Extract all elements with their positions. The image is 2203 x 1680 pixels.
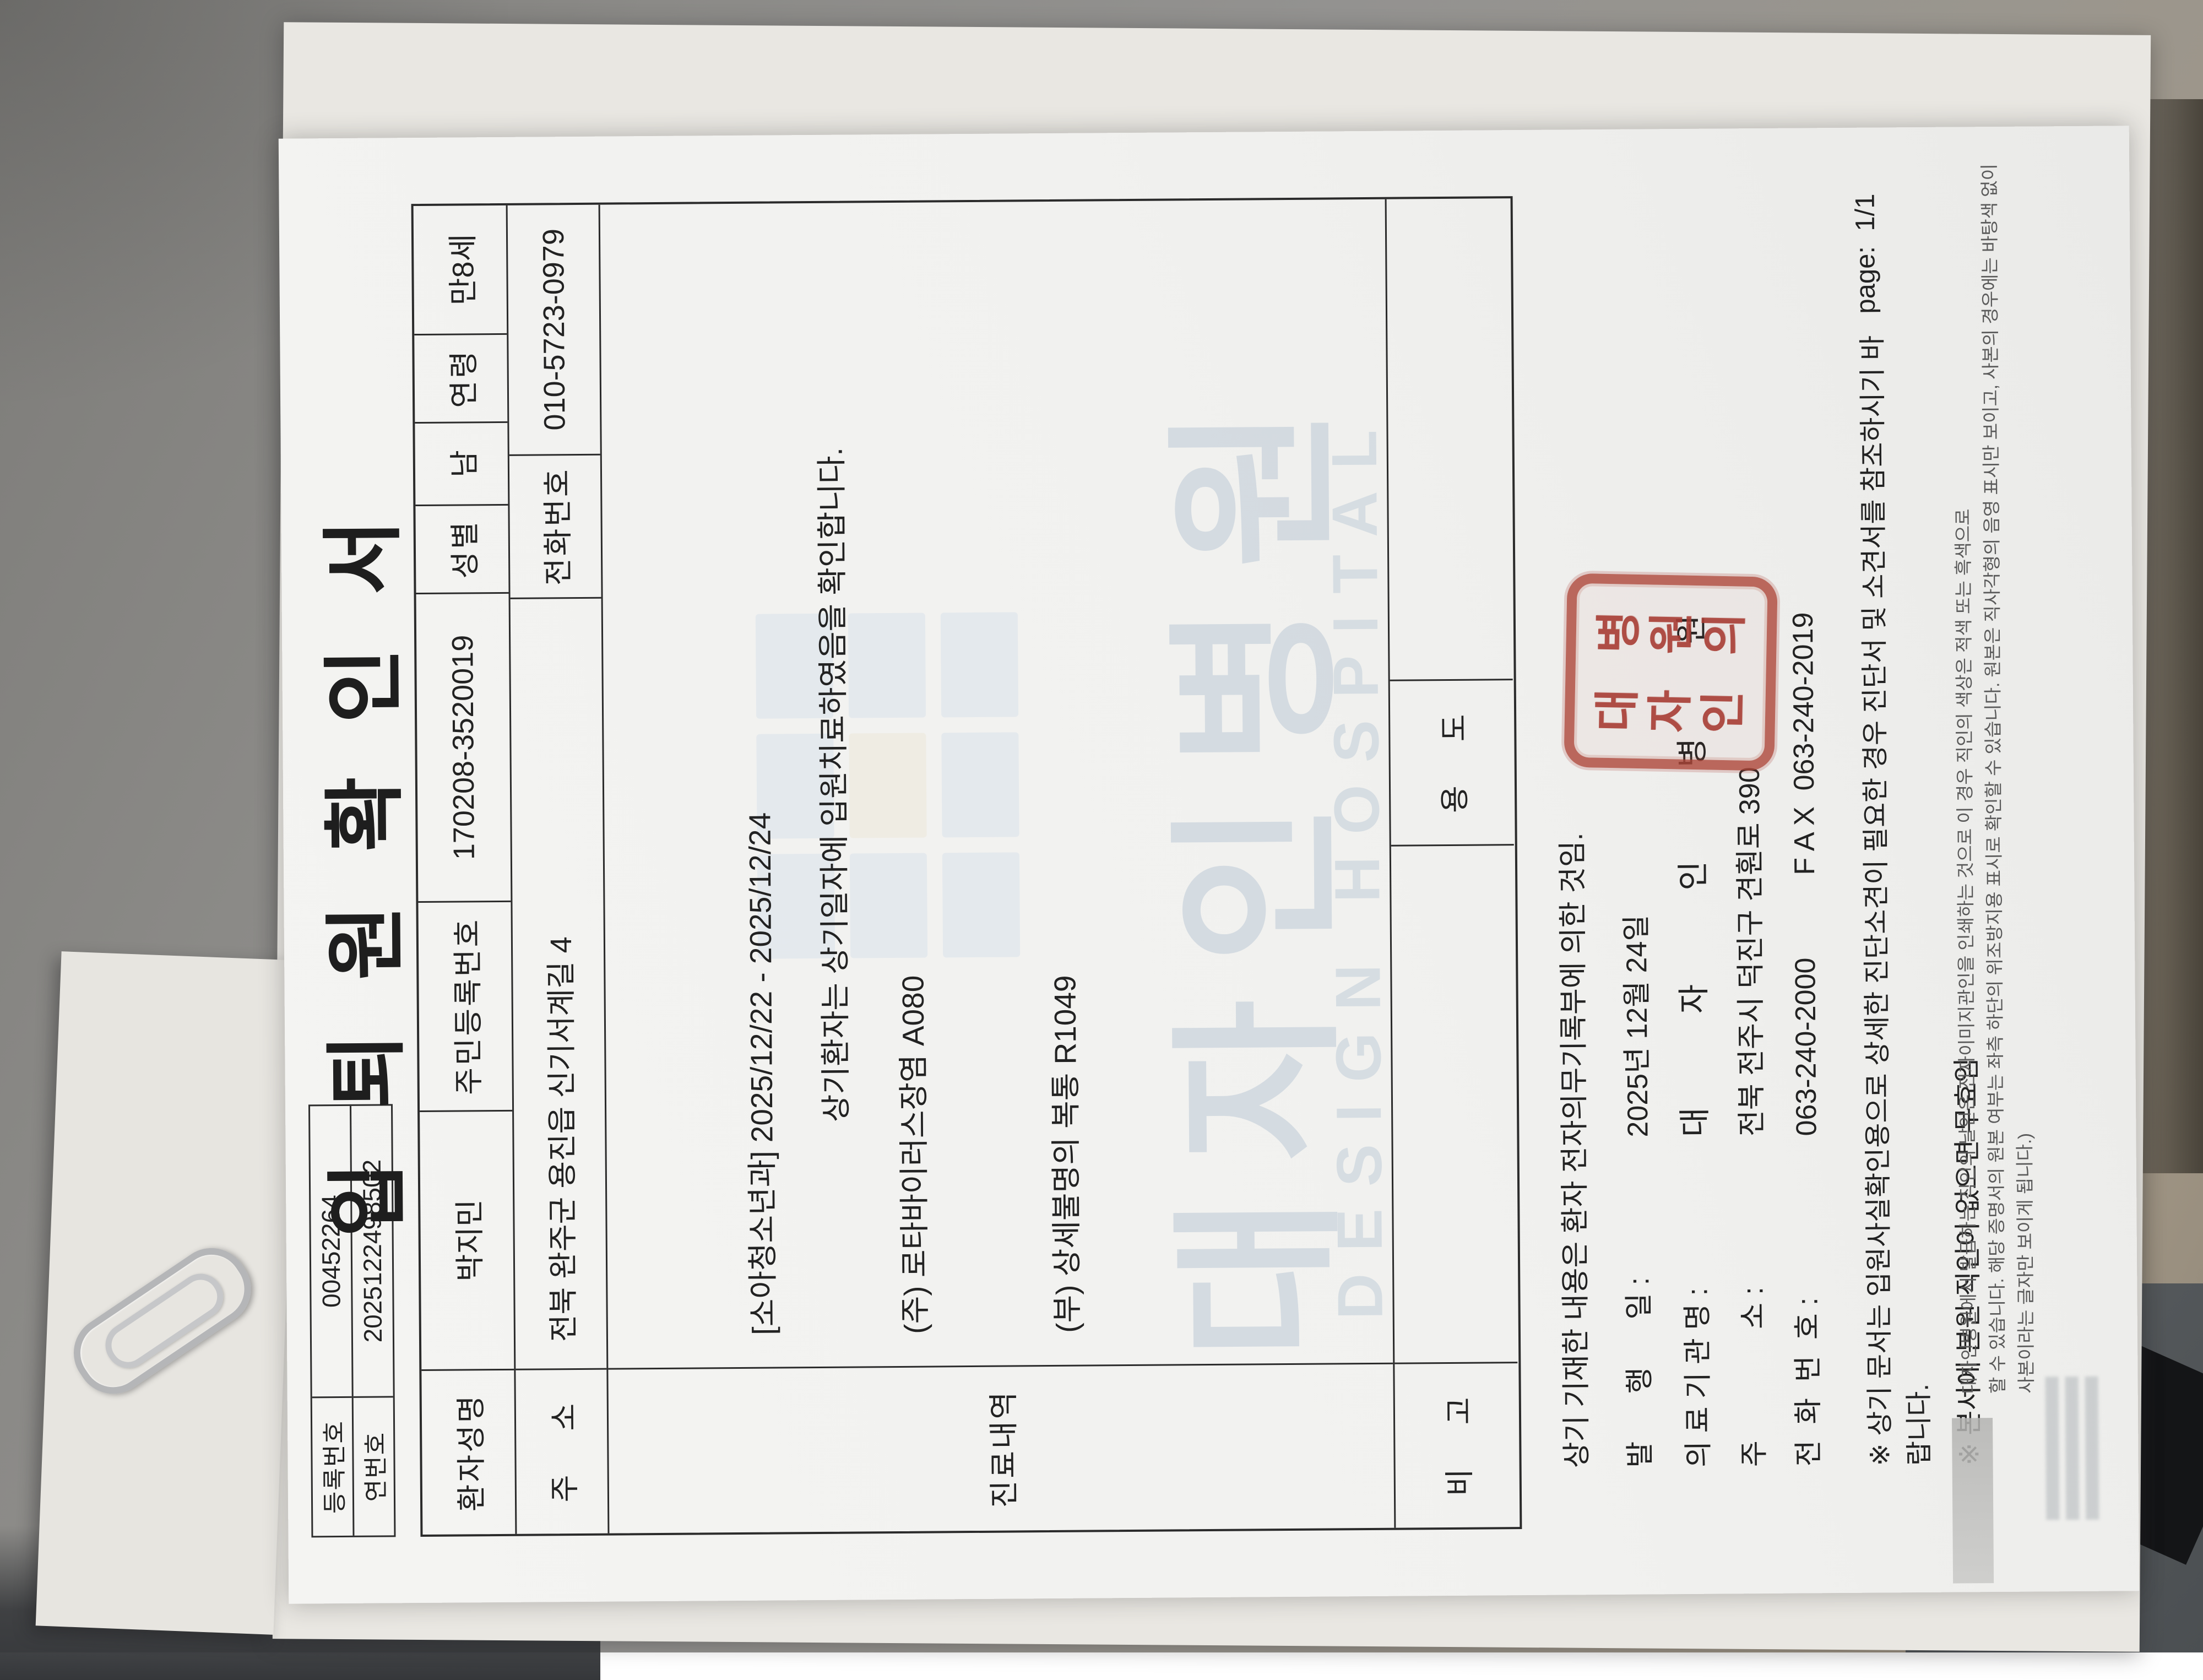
- table-row: 주 소 전북 완주군 용진읍 신기서계길 4 전화번호 010-5723-097…: [506, 205, 608, 1534]
- patient-name-label: 환자성명: [421, 1369, 515, 1535]
- table-row: 비 고 용 도: [1385, 198, 1519, 1528]
- secondary-diagnosis-line: (부) 상세불명의 복통 R1049: [1038, 810, 1093, 1333]
- age-value: 만8세: [414, 205, 507, 334]
- resident-number-label: 주민등록번호: [418, 901, 512, 1110]
- institution-phone-value: 063-240-2000: [1789, 957, 1823, 1136]
- institution-address-label: 주 소 :: [1728, 1136, 1772, 1467]
- fine-print-paragraph: 대자인병원에서 발급하는 직인의 날인은 전자이미지관인을 인쇄하는 것으로 이…: [1946, 160, 2041, 1394]
- address-value: 전북 완주군 용진읍 신기서계길 4: [511, 597, 607, 1369]
- issue-date-row: 발 행 일 : 2025년 12월 24일: [1608, 195, 1658, 1467]
- remarks-label: 비 고: [1394, 1362, 1518, 1528]
- page-title: 입 퇴 원 확 인 서: [294, 138, 423, 1603]
- print-through-ghost-text: [2039, 1376, 2117, 1520]
- age-label: 연령: [414, 333, 507, 422]
- sex-value: 남: [415, 421, 508, 505]
- issue-date-label: 발 행 일 :: [1614, 1137, 1658, 1468]
- page-label: page:: [1851, 246, 1881, 314]
- address-label: 주 소: [516, 1368, 607, 1534]
- reference-note: ※ 상기 문서는 입원사실확인용으로 상세한 진단소견이 필요한 경우 진단서 …: [1851, 313, 1937, 1466]
- document-footer: 상기 기재한 내용은 환자 전자의무기록부에 의한 것임. 발 행 일 : 20…: [1545, 193, 1987, 1468]
- table-row: 진료내역 [소아청소년과] 2025/12/22 - 2025/12/24 (주…: [599, 199, 1394, 1533]
- institution-name-label: 의 료 기 관 명 :: [1673, 1137, 1716, 1468]
- footnote-row: ※ 상기 문서는 입원사실확인용으로 상세한 진단소견이 필요한 경우 진단서 …: [1850, 193, 1937, 1466]
- treatment-history-label: 진료내역: [608, 1363, 1394, 1533]
- fine-print-line-2: 할 수 있습니다. 해당 증명서의 원본 여부는 좌측 하단의 위조방지용 표시…: [1975, 160, 2041, 1394]
- institution-phone-row: 전 화 번 호 : 063-240-2000 F A X 063-240-201…: [1777, 194, 1827, 1466]
- resident-number-value: 170208-3520019: [416, 592, 511, 901]
- anti-forgery-mark: [1952, 1418, 1994, 1584]
- institution-address-row: 주 소 : 전북 전주시 덕진구 견훤로 390: [1722, 194, 1772, 1467]
- stamp-text: 대자인 병원의: [1583, 592, 1759, 752]
- phone-value: 010-5723-0979: [508, 205, 600, 454]
- record-basis-statement: 상기 기재한 내용은 환자 전자의무기록부에 의한 것임.: [1545, 196, 1595, 1468]
- confirmation-statement: 상기환자는 상기일자에 입원치료하였음을 확인합니다.: [805, 203, 858, 1367]
- stamp-text-column-1: 대자인: [1590, 684, 1750, 738]
- phone-label: 전화번호: [509, 454, 601, 598]
- treatment-history-cell: [소아청소년과] 2025/12/22 - 2025/12/24 (주) 로타바…: [600, 199, 1393, 1368]
- issue-date-value: 2025년 12월 24일: [1613, 915, 1656, 1137]
- purpose-label: 용 도: [1390, 679, 1514, 845]
- page-value: 1/1: [1851, 193, 1880, 231]
- department-period-line: [소아청소년과] 2025/12/22 - 2025/12/24: [734, 812, 789, 1335]
- page-indicator: page: 1/1: [1850, 193, 1929, 314]
- institution-name-row: 의 료 기 관 명 : 대 자 인 병 원: [1663, 195, 1718, 1468]
- institution-phone-label: 전 화 번 호 :: [1783, 1136, 1826, 1467]
- institution-fax-value: F A X 063-240-2019: [1787, 612, 1821, 875]
- sex-label: 성별: [415, 504, 508, 593]
- hospital-seal-stamp: 대자인 병원의: [1564, 573, 1778, 771]
- remarks-value-empty: [1391, 844, 1518, 1363]
- institution-address-value: 전북 전주시 덕진구 견훤로 390: [1726, 767, 1770, 1136]
- photo-scene: 대자인병원 DESIGN HOSPITAL 등록번호 00452264 연번호 …: [0, 0, 2203, 1652]
- primary-diagnosis-line: (주) 로타바이러스장염 A080: [886, 811, 941, 1334]
- table-row: 환자성명 박지민 주민등록번호 170208-3520019 성별 남 연령 만…: [414, 205, 516, 1535]
- stamp-text-column-2: 병원의: [1592, 606, 1751, 660]
- document-page: 대자인병원 DESIGN HOSPITAL 등록번호 00452264 연번호 …: [279, 126, 2139, 1603]
- purpose-value-empty: [1387, 198, 1513, 680]
- patient-info-table: 환자성명 박지민 주민등록번호 170208-3520019 성별 남 연령 만…: [411, 196, 1522, 1537]
- diagnosis-block: [소아청소년과] 2025/12/22 - 2025/12/24 (주) 로타바…: [633, 809, 1194, 1336]
- patient-name-value: 박지민: [420, 1110, 514, 1369]
